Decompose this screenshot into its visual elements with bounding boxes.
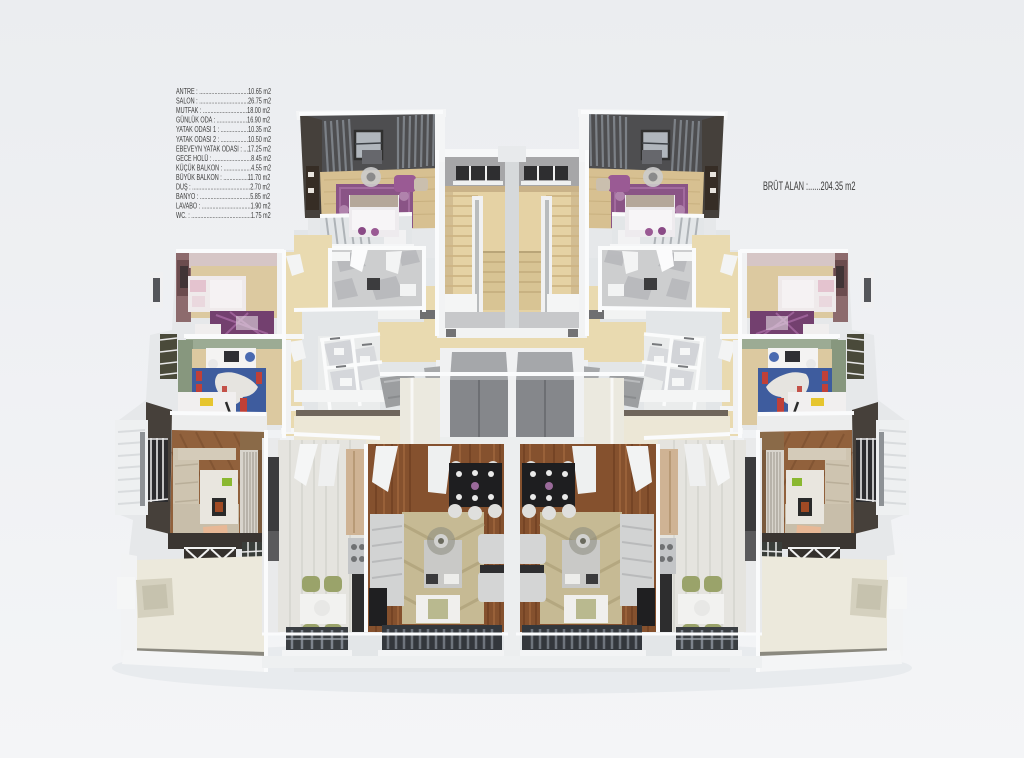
svg-text:YATAK ODASI 1 : ..............: YATAK ODASI 1 : ..................10.35 … xyxy=(176,126,271,134)
svg-text:LAVABO : .....................: LAVABO : ...............................… xyxy=(176,203,271,211)
svg-text:GÜNLÜK ODA : .................: GÜNLÜK ODA : ....................16.90 m… xyxy=(176,116,270,125)
svg-text:BRÜT ALAN :......204.35 m2: BRÜT ALAN :......204.35 m2 xyxy=(763,180,855,193)
svg-text:YATAK ODASI 2 : ..............: YATAK ODASI 2 : ..................10.50 … xyxy=(176,136,271,144)
svg-text:WC. : ........................: WC. : ..................................… xyxy=(176,212,271,220)
svg-text:KÜÇÜK BALKON : ...............: KÜÇÜK BALKON : ..................4.55 m2 xyxy=(176,163,271,172)
svg-text:DUŞ : ........................: DUŞ : ..................................… xyxy=(176,184,270,192)
svg-text:ANTRE : ......................: ANTRE : ................................… xyxy=(176,88,271,96)
svg-text:GECE HOLÜ : ..................: GECE HOLÜ : .........................8.4… xyxy=(176,154,271,163)
svg-text:SALON : ......................: SALON : ................................… xyxy=(176,98,271,106)
svg-text:EBEVEYN YATAK ODASI : ...17.25: EBEVEYN YATAK ODASI : ...17.25 m2 xyxy=(176,145,271,153)
svg-text:BANYO : ......................: BANYO : ................................… xyxy=(176,193,270,201)
svg-text:MUTFAK : .....................: MUTFAK : .............................18… xyxy=(176,107,270,115)
svg-text:BÜYÜK BALKON : ...............: BÜYÜK BALKON : ................11.70 m2 xyxy=(176,173,270,182)
